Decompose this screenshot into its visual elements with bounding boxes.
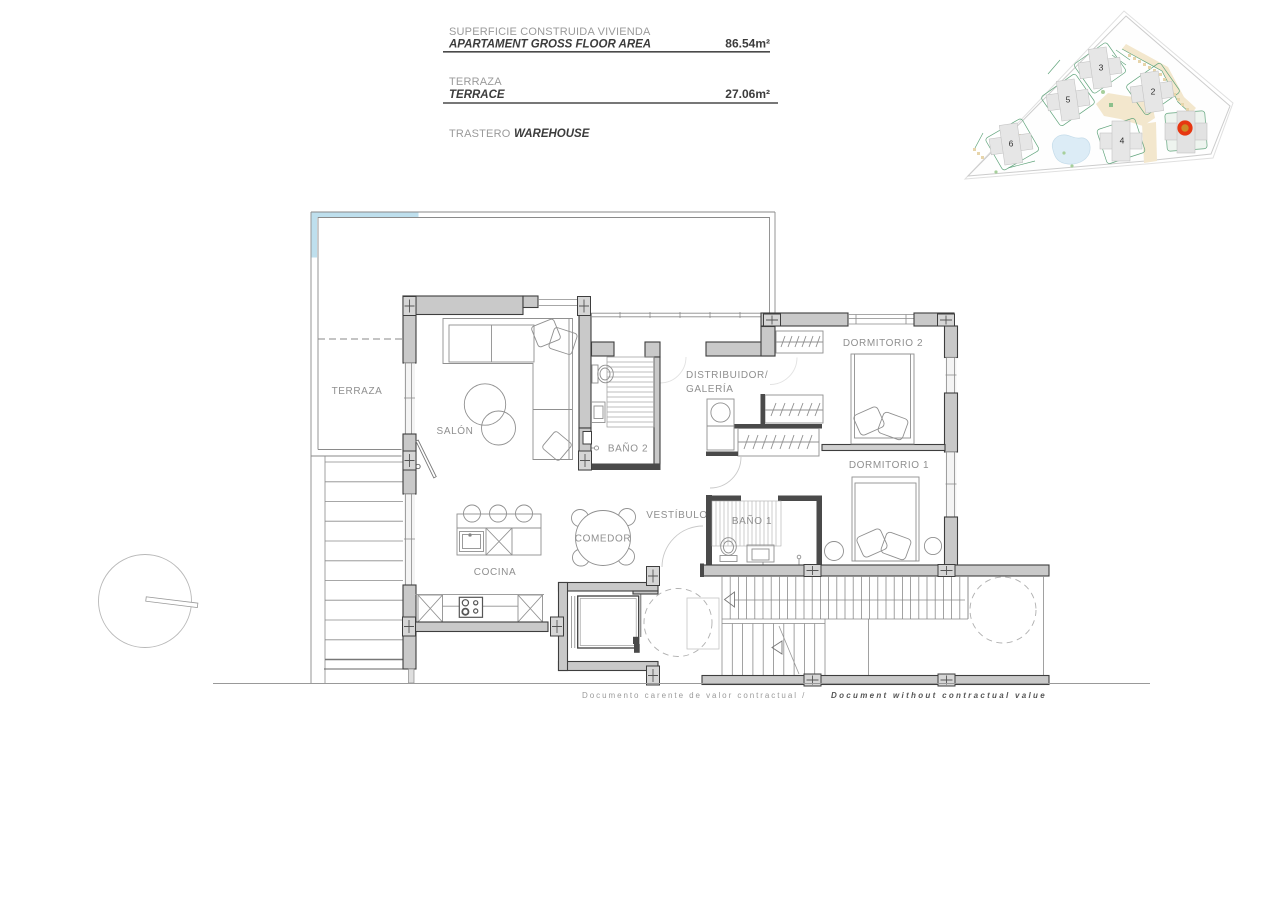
svg-text:27.06m²: 27.06m² xyxy=(725,87,770,101)
svg-text:SUPERFICIE CONSTRUIDA VIVIENDA: SUPERFICIE CONSTRUIDA VIVIENDA xyxy=(449,26,651,38)
svg-text:4: 4 xyxy=(1120,136,1125,146)
svg-text:6: 6 xyxy=(1009,139,1014,149)
svg-text:3: 3 xyxy=(1099,63,1104,73)
svg-text:WAREHOUSE: WAREHOUSE xyxy=(514,128,590,140)
svg-text:BAÑO 2: BAÑO 2 xyxy=(608,442,648,455)
svg-text:VESTÍBULO: VESTÍBULO xyxy=(646,508,708,521)
svg-text:GALERÍA: GALERÍA xyxy=(686,382,734,395)
svg-text:BAÑO 1: BAÑO 1 xyxy=(732,514,772,527)
svg-text:DORMITORIO 1: DORMITORIO 1 xyxy=(849,460,929,471)
svg-text:TERRAZA: TERRAZA xyxy=(449,76,502,88)
svg-text:Document without contractual v: Document without contractual value xyxy=(831,691,1047,700)
svg-text:COMEDOR: COMEDOR xyxy=(575,534,631,545)
svg-text:2: 2 xyxy=(1151,87,1156,97)
svg-text:APARTAMENT GROSS FLOOR AREA: APARTAMENT GROSS FLOOR AREA xyxy=(448,39,651,51)
svg-text:DORMITORIO 2: DORMITORIO 2 xyxy=(843,338,923,349)
svg-text:Documento carente de valor con: Documento carente de valor contractual / xyxy=(582,691,806,700)
svg-text:86.54m²: 86.54m² xyxy=(725,37,770,51)
svg-text:DISTRIBUIDOR/: DISTRIBUIDOR/ xyxy=(686,370,768,381)
svg-text:TERRAZA: TERRAZA xyxy=(332,386,383,397)
svg-text:COCINA: COCINA xyxy=(474,567,517,578)
svg-text:SALÓN: SALÓN xyxy=(437,424,474,437)
svg-text:TERRACE: TERRACE xyxy=(449,89,505,101)
svg-text:TRASTERO: TRASTERO xyxy=(449,128,511,140)
svg-text:5: 5 xyxy=(1066,95,1071,105)
